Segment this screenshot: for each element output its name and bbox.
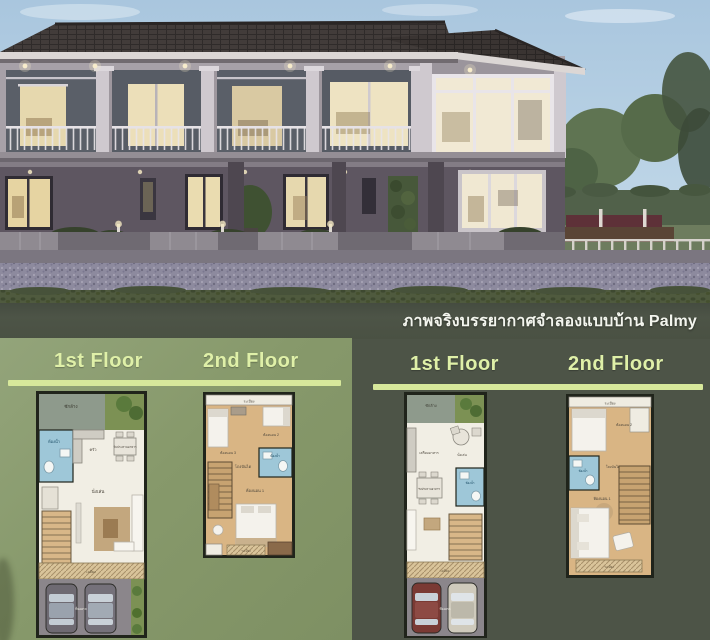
label-balcony-bottom-r: ระเบียง [604,565,614,569]
stairs [42,511,71,563]
label-dining-r: รับประทานอาหาร [418,487,441,491]
car-right-white [448,583,477,633]
label-kitchen: ครัว [89,447,96,452]
car-right-red [412,583,441,633]
stairs-r1 [449,514,482,560]
label-balcony-top-r: ระเบียง [605,401,616,406]
floorplan-left-1st: ซักล้าง ห้องน้ำ ครัว รับประทานอาหาร นั่ง… [36,391,147,638]
label-bedroom2-r: ห้องนอน 2 [616,423,632,427]
car-left-1 [46,584,77,633]
label-terrace-r: เฉลียง [441,569,450,573]
left-2nd-floor-label: 2nd Floor [203,350,299,373]
floorplan-left-2nd: ระเบียง ห้องนอน 3 ห้องนอน 2 ห้องน้ำ โถงบ… [203,392,295,558]
label-carport: ที่จอดรถ [75,606,87,611]
left-1st-floor-label: 1st Floor [54,350,143,373]
label-living: นั่งเล่น [92,488,105,494]
label-bedroom1-r: ห้องนอน 1 [593,496,610,501]
floorplan-right-2nd: ระเบียง ห้องนอน 2 ห้องน้ำ โถงบันได ห้องน… [566,394,654,578]
label-bath: ห้องน้ำ [48,437,60,444]
label-terrace: เฉลียง [86,569,96,574]
right-header-underline [373,384,703,390]
right-2nd-floor-label: 2nd Floor [568,353,664,376]
label-balcony-top: ระเบียง [244,399,255,404]
label-dining: รับประทานอาหาร [113,445,137,449]
green-wall-plant [388,176,418,232]
townhouse-photo [0,0,710,305]
townhouse-photo-graphic [0,0,710,305]
balcony-bays [6,66,429,158]
glass-room-upper [420,58,566,158]
right-1st-floor-label: 1st Floor [410,353,499,376]
photo-caption: ภาพจริงบรรยากาศจำลองแบบบ้าน Palmy [403,309,697,334]
stairs-r2 [619,466,650,524]
brochure-page: ภาพจริงบรรยากาศจำลองแบบบ้าน Palmy 1st Fl… [0,0,710,640]
label-hall-r: โถงบันได [606,464,620,469]
label-bath2f: ห้องน้ำ [270,453,280,458]
scan-smudge [0,558,14,640]
caption-band: ภาพจริงบรรยากาศจำลองแบบบ้าน Palmy [0,303,710,339]
building-facade [0,22,585,246]
label-balcony-bottom: ระเบียง [241,549,251,553]
label-bedroom3: ห้องนอน 3 [220,451,236,455]
label-prep: เตรียมอาหาร [419,450,438,455]
car-left-2 [85,584,116,633]
label-bath2-r: ห้องน้ำ [578,468,587,473]
label-bedroom2: ห้องนอน 2 [263,433,279,437]
label-bath-r: ห้องน้ำ [465,480,474,485]
floorplan-right-1st: ซักล้าง นั่งเล่น เตรียมอาหาร ห้องน้ำ รับ… [404,392,487,638]
label-living-r: นั่งเล่น [457,452,467,457]
label-hall: โถงบันได [235,464,252,469]
label-laundry-r: ซักล้าง [425,403,436,408]
label-laundry: ซักล้าง [64,404,77,409]
label-carport-r: ที่จอดรถ [440,607,451,611]
left-header-underline [8,380,341,386]
label-bedroom1: ห้องนอน 1 [246,488,265,493]
